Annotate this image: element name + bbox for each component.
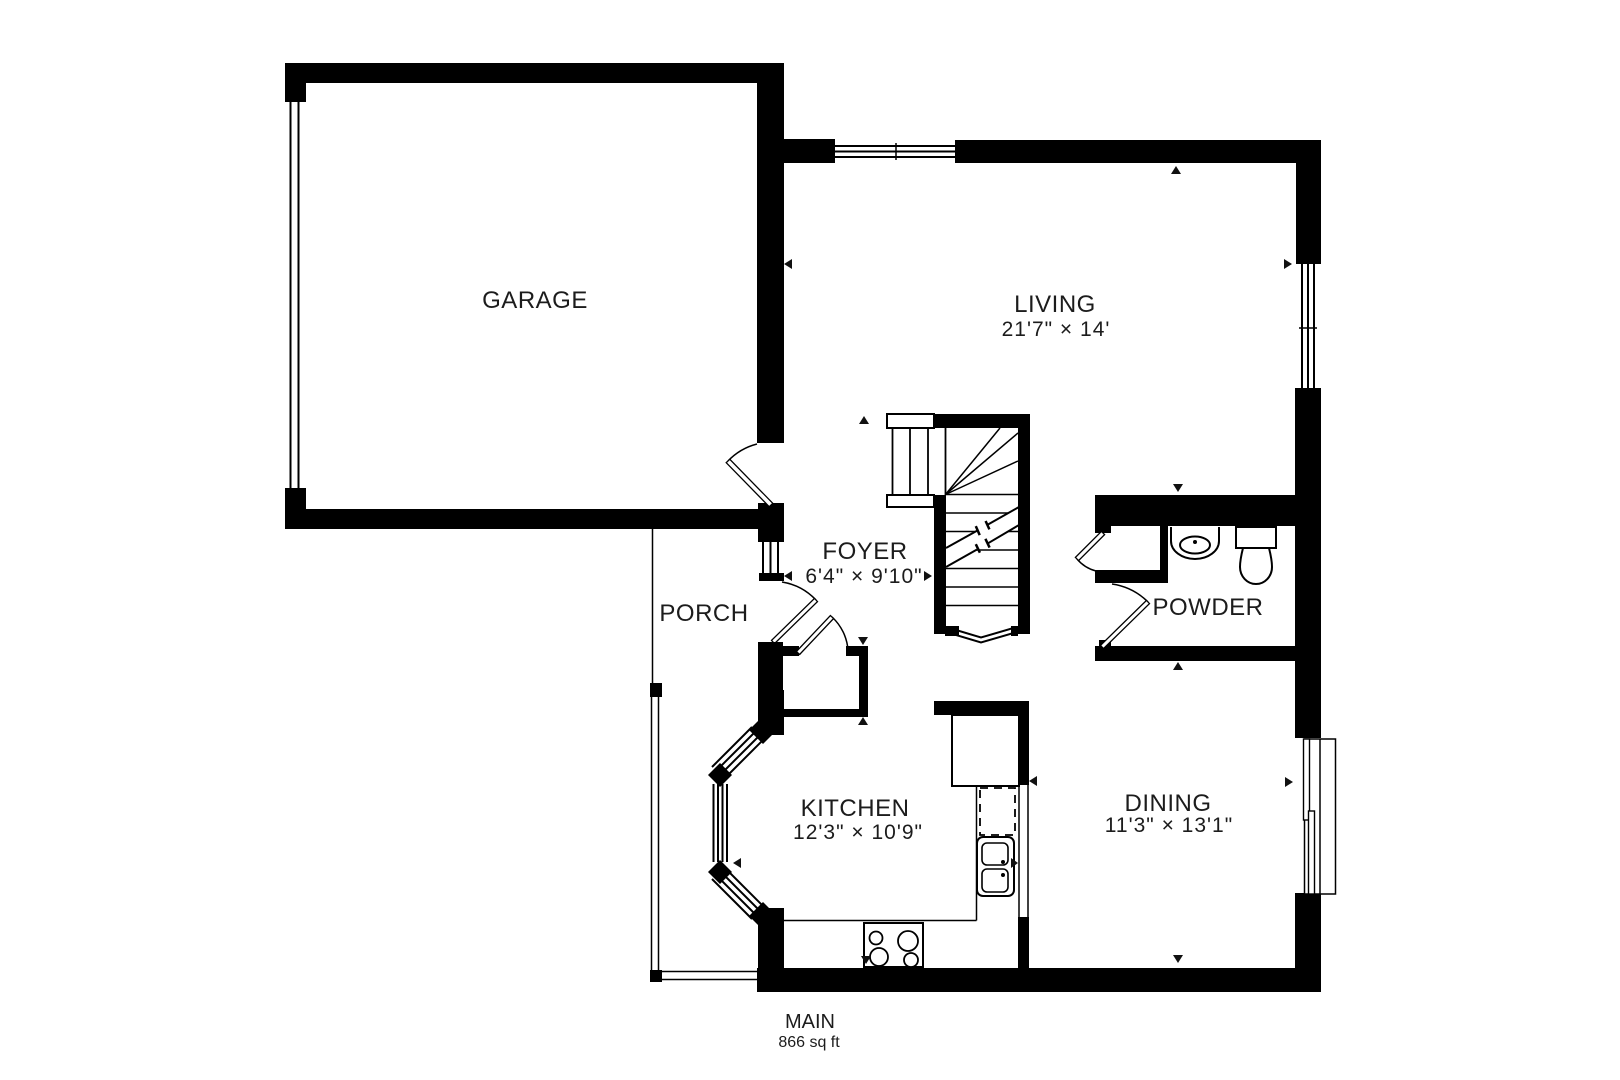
svg-text:POWDER: POWDER — [1153, 594, 1264, 621]
svg-text:21'7" × 14': 21'7" × 14' — [1002, 318, 1111, 341]
svg-text:DINING: DINING — [1125, 790, 1212, 817]
svg-text:MAIN: MAIN — [785, 1011, 835, 1033]
svg-text:866 sq ft: 866 sq ft — [778, 1034, 840, 1051]
svg-text:GARAGE: GARAGE — [482, 287, 588, 314]
svg-text:12'3" × 10'9": 12'3" × 10'9" — [793, 821, 923, 844]
svg-text:6'4" × 9'10": 6'4" × 9'10" — [805, 565, 922, 588]
svg-text:KITCHEN: KITCHEN — [801, 795, 910, 822]
svg-text:LIVING: LIVING — [1014, 291, 1096, 318]
svg-text:PORCH: PORCH — [659, 600, 748, 627]
svg-text:11'3" × 13'1": 11'3" × 13'1" — [1105, 814, 1233, 837]
svg-text:FOYER: FOYER — [822, 538, 907, 565]
